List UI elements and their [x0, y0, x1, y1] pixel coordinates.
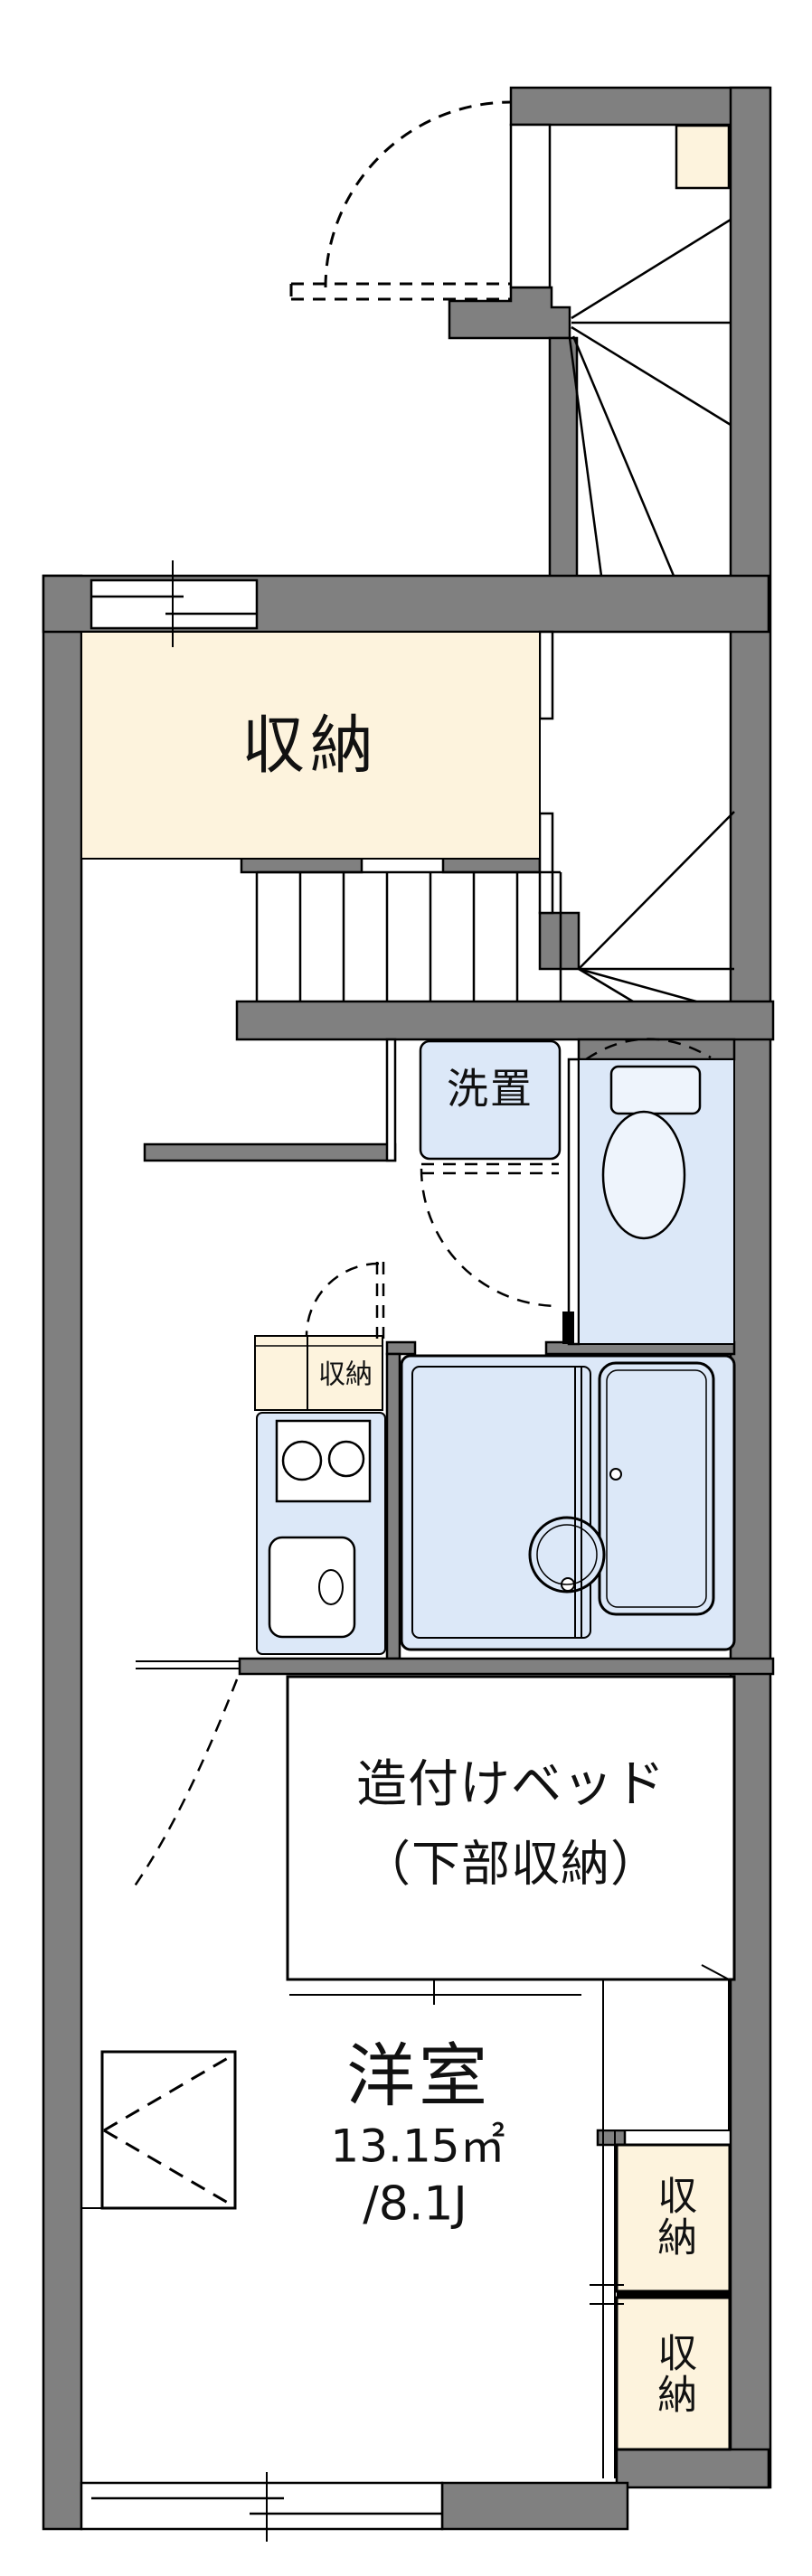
wall-bottom-mid [442, 2483, 628, 2529]
wall-hall-vertical [387, 1039, 395, 1161]
toilet-bowl [603, 1112, 685, 1238]
wall-closet-right-lower [540, 813, 552, 913]
wall-kitchen-bath-divider [387, 1354, 400, 1659]
floorplan: 収納 洗置 収納 造付けベッド （下部収納） 洋室 13.15㎡ /8.1J 収… [0, 0, 812, 2576]
label-storage-right-bottom: 収納 [651, 2332, 694, 2415]
label-storage-upper: 収納 [241, 711, 379, 781]
laundry-door-arc [421, 1169, 559, 1306]
corner-cabinet [102, 2052, 235, 2208]
window-top [91, 580, 257, 628]
bathtub [600, 1363, 713, 1614]
wall-entrance-newel [449, 287, 570, 338]
sink-drain-icon [319, 1570, 343, 1604]
burner-left-icon [283, 1442, 321, 1480]
wall-hall-stub [145, 1144, 395, 1161]
laundry-door-leaf [421, 1164, 559, 1173]
kitchen-door-leaf [377, 1262, 383, 1339]
burner-right-icon [329, 1442, 364, 1476]
storage-entrance [676, 126, 729, 188]
stair-winder-1f [571, 220, 731, 318]
wall-bath-top-left [387, 1342, 415, 1354]
corridor-door-arc [134, 1679, 237, 1887]
closet-divider [617, 2291, 730, 2298]
label-area-tatami: /8.1J [363, 2178, 467, 2230]
toilet-door-jamb [562, 1312, 574, 1344]
wall-closet-stub [598, 2130, 625, 2145]
bath-door-knob-icon [610, 1469, 621, 1480]
wall-toilet-left [569, 1059, 579, 1344]
wall-below-stairs [237, 1001, 773, 1039]
label-storage-right-top: 収納 [651, 2175, 694, 2258]
entrance-door-arc [326, 102, 511, 287]
wall-entrance-jamb [511, 125, 550, 287]
wall-right [731, 88, 770, 2487]
label-laundry: 洗置 [447, 1067, 533, 1113]
window-bottom [81, 2483, 442, 2529]
shower-floor [412, 1367, 590, 1638]
wall-entrance-strip [550, 338, 577, 578]
label-bed-line1: 造付けベッド [356, 1757, 666, 1813]
wall-closet-right-upper [540, 632, 552, 719]
wall-below-kitchen-bath [240, 1659, 773, 1674]
kitchen-door-arc [307, 1264, 379, 1336]
bed-outline [288, 1677, 734, 1979]
label-area-sqm: 13.15㎡ [330, 2122, 505, 2172]
wall-left [43, 576, 81, 2529]
wall-stair-newel [540, 913, 579, 969]
wall-bottom-right [617, 2449, 769, 2487]
entrance-door-leaf [291, 284, 511, 299]
label-storage-kitchen: 収納 [318, 1360, 373, 1390]
stair-winder-2f [579, 812, 734, 969]
label-main-room: 洋室 [346, 2038, 491, 2114]
label-bed-line2: （下部収納） [362, 1837, 660, 1890]
nook-below-bed [603, 1979, 729, 2130]
toilet-tank [611, 1067, 700, 1114]
